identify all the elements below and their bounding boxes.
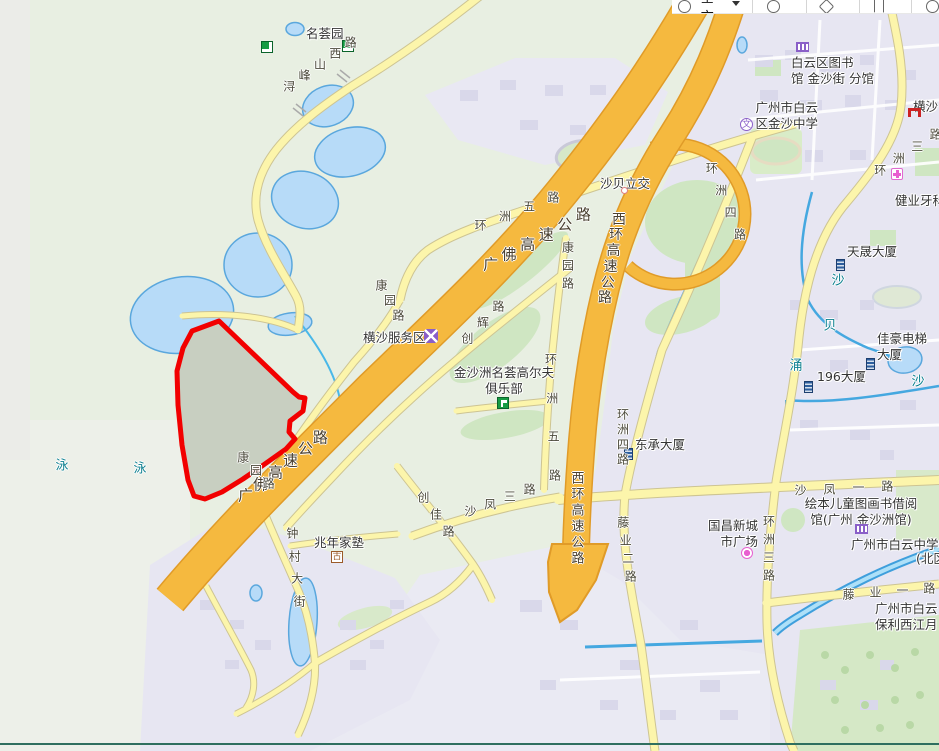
toolbar-divider [911, 0, 912, 14]
bookmark-icon[interactable] [874, 0, 885, 13]
chevron-down-icon[interactable] [732, 1, 740, 6]
map-terrain-edge [0, 0, 30, 460]
map-canvas[interactable] [0, 0, 939, 751]
toolbar: 全市 [672, 0, 939, 14]
toolbar-divider [806, 0, 807, 14]
history-icon[interactable] [926, 0, 939, 13]
map-app: 名荟园白云区图书馆 金沙街 分馆广州市白云区金沙中学横沙健业牙科天晟大厦佳豪电梯… [0, 0, 939, 751]
toolbar-divider [859, 0, 860, 14]
city-selector[interactable]: 全市 [701, 0, 726, 14]
locate-icon[interactable] [767, 0, 780, 13]
toolbar-divider [752, 0, 753, 14]
refresh-icon[interactable] [678, 0, 691, 13]
tag-icon[interactable] [818, 0, 833, 14]
